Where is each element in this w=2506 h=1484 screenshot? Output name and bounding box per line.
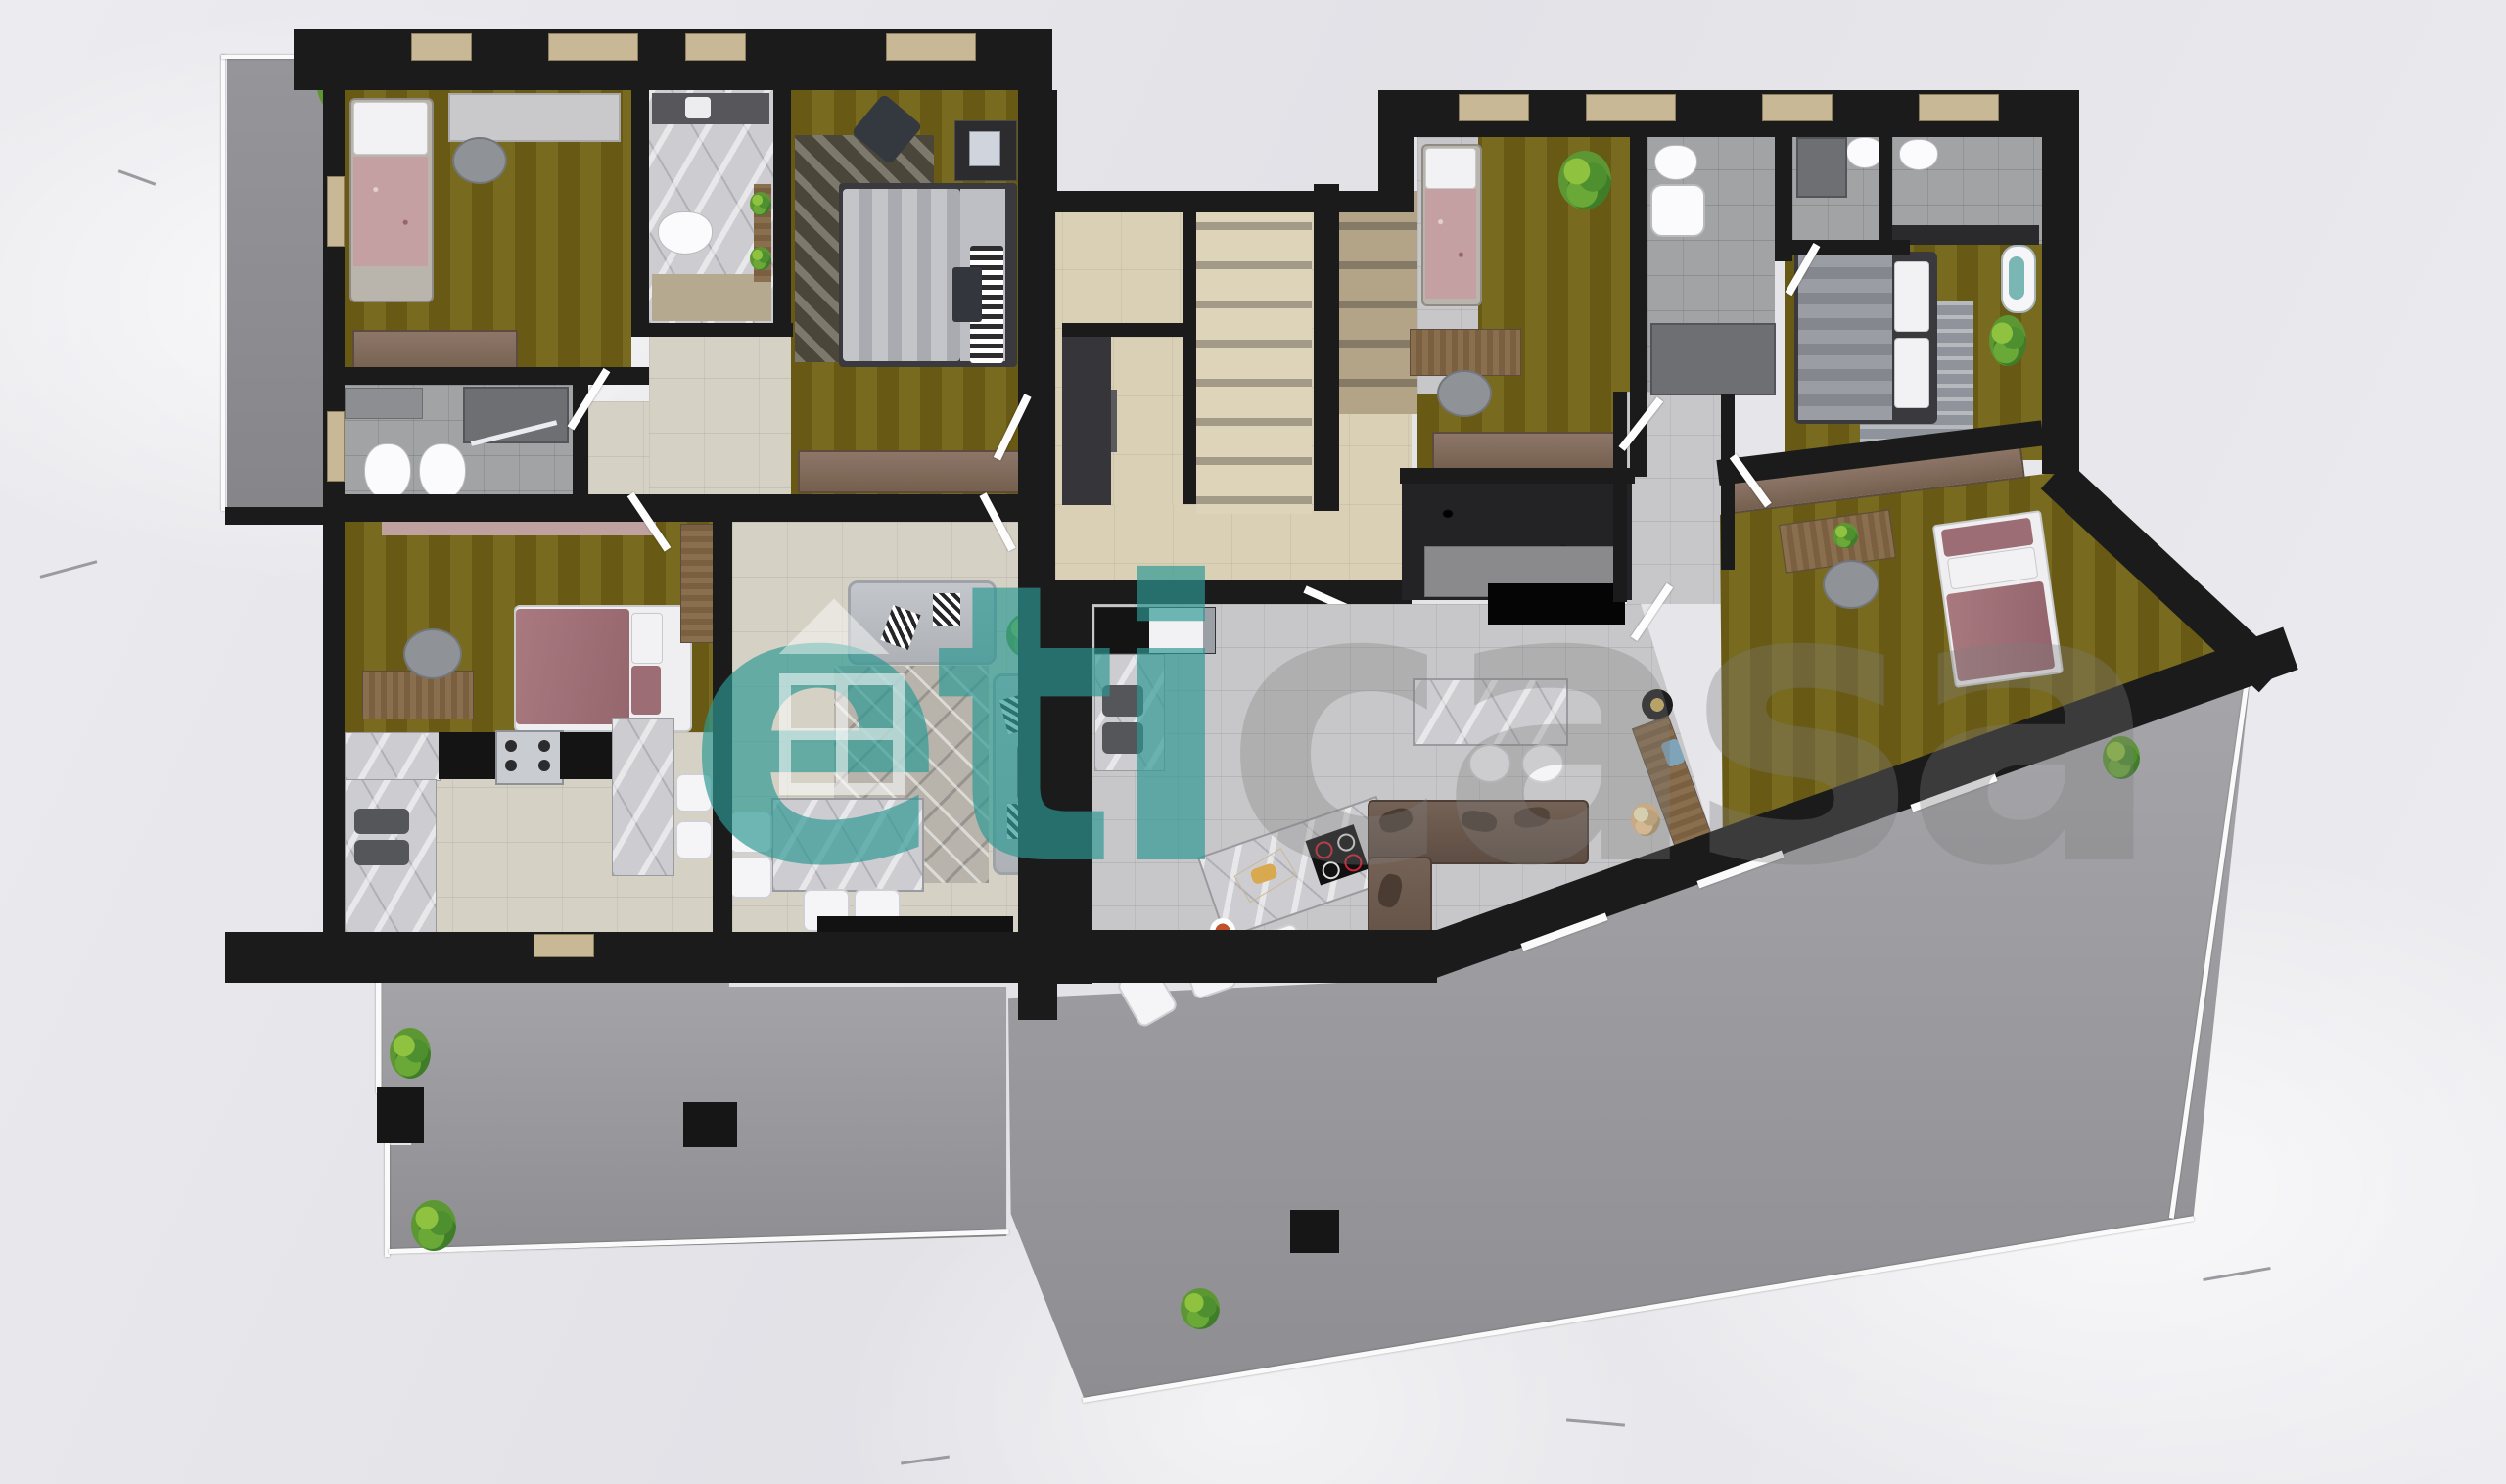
burner <box>505 740 517 752</box>
wall <box>1775 134 1792 261</box>
window-lintel <box>534 934 594 957</box>
console-plant <box>750 192 771 215</box>
wall <box>631 90 649 325</box>
kitchen-island <box>612 718 674 876</box>
desk <box>362 671 474 719</box>
wall <box>1378 90 1414 212</box>
desk-chair <box>1437 370 1492 417</box>
desk-chair <box>452 137 507 184</box>
window-lintel <box>327 176 345 247</box>
elevator-door <box>1111 390 1117 452</box>
toilet <box>1899 139 1938 170</box>
wall <box>631 323 793 337</box>
bathtub-water <box>2009 256 2024 300</box>
bathroom-sink <box>685 97 711 118</box>
toilet <box>364 443 411 500</box>
kitchen-cabinet <box>560 732 617 779</box>
console-plant <box>750 247 771 270</box>
bed-blanket <box>353 157 428 266</box>
terrace-plant <box>411 1200 456 1251</box>
double-bed-mauve <box>514 605 692 732</box>
window-lintel <box>886 33 976 61</box>
wall <box>2042 90 2079 474</box>
stair-railing-wall <box>1314 184 1339 511</box>
bathroom-vanity <box>345 388 423 419</box>
bedroom-plant <box>1558 151 1611 209</box>
burner <box>538 760 550 771</box>
window-lintel <box>411 33 472 61</box>
wall <box>1062 323 1183 337</box>
bed-pillow <box>1425 148 1476 189</box>
single-bed <box>349 98 434 302</box>
double-bed-gray <box>1794 252 1937 424</box>
bed-pillow <box>1894 338 1929 408</box>
desk-chair <box>403 628 462 679</box>
window-lintel <box>1919 94 1999 121</box>
wall <box>1879 134 1892 240</box>
ground-mark <box>1566 1418 1625 1426</box>
wall <box>1183 210 1196 504</box>
wall <box>1400 468 1635 484</box>
bed-blanket <box>1425 189 1476 299</box>
watermark: eticasa <box>685 533 2150 920</box>
desk <box>1410 329 1521 376</box>
hallway-left-apartment <box>588 401 649 494</box>
ground-mark <box>901 1456 950 1465</box>
bed-pillow-dark <box>952 267 982 322</box>
wall <box>1052 191 1413 212</box>
elevator-shaft <box>1062 337 1111 505</box>
burner <box>538 740 550 752</box>
window-lintel <box>1762 94 1833 121</box>
window-lintel <box>685 33 746 61</box>
bed-pillow <box>631 613 663 664</box>
bathroom-vanity <box>652 93 769 124</box>
window-lintel <box>548 33 638 61</box>
wall <box>225 507 333 525</box>
bed-pillow <box>1894 261 1929 332</box>
elevator-cab <box>1113 337 1183 505</box>
kitchen-cabinet <box>439 732 495 779</box>
stair-flight-up <box>1196 191 1312 514</box>
kitchen-sink <box>354 840 409 865</box>
window-lintel <box>1586 94 1676 121</box>
desk <box>448 93 621 142</box>
bed-pillow-mauve <box>631 666 661 715</box>
balcony-railing <box>221 55 225 511</box>
kitchen-sink <box>354 809 409 834</box>
bathtub <box>1650 184 1705 237</box>
terrace-railing <box>385 1141 390 1257</box>
freestanding-bathtub <box>2001 245 2036 313</box>
watermark-secondary: casa <box>1224 501 2150 951</box>
bidet <box>419 443 466 500</box>
hallway-left-apartment <box>649 323 791 499</box>
dresser <box>1432 432 1617 471</box>
watermark-primary: eti <box>685 501 1224 951</box>
stair-hall-storage <box>1062 210 1183 323</box>
kitchen-counter-top <box>345 732 441 781</box>
toilet <box>1654 145 1697 180</box>
house-icon <box>779 673 905 795</box>
single-bed <box>1421 144 1482 306</box>
window-lintel <box>1459 94 1529 121</box>
bedroom-plant <box>1989 315 2026 366</box>
terrace-column <box>683 1102 737 1147</box>
terrace-plant <box>390 1028 431 1079</box>
terrace-column <box>1290 1210 1339 1253</box>
bed-blanket-mauve <box>516 609 629 724</box>
ground-mark <box>118 169 157 185</box>
headboard-band <box>382 522 656 535</box>
toilet <box>658 211 713 255</box>
dresser <box>798 450 1025 493</box>
terrace-column <box>377 1087 424 1143</box>
floor-plan-render: eticasa <box>0 0 2506 1484</box>
cooktop <box>495 730 564 785</box>
balcony-left <box>227 59 323 507</box>
vanity-counter <box>1892 225 2039 245</box>
bed-blanket <box>1798 255 1892 420</box>
bed-pillow <box>353 102 428 155</box>
ground-mark <box>2203 1267 2270 1281</box>
shower <box>1796 137 1847 198</box>
window-lintel <box>327 411 345 482</box>
nightstand-books <box>969 131 1000 166</box>
ground-mark <box>40 560 98 578</box>
double-bed <box>839 183 1017 367</box>
bed-blanket <box>843 189 960 361</box>
terrace-plant <box>1181 1288 1220 1329</box>
burner <box>505 760 517 771</box>
shower <box>1650 323 1776 395</box>
wall <box>773 90 791 325</box>
